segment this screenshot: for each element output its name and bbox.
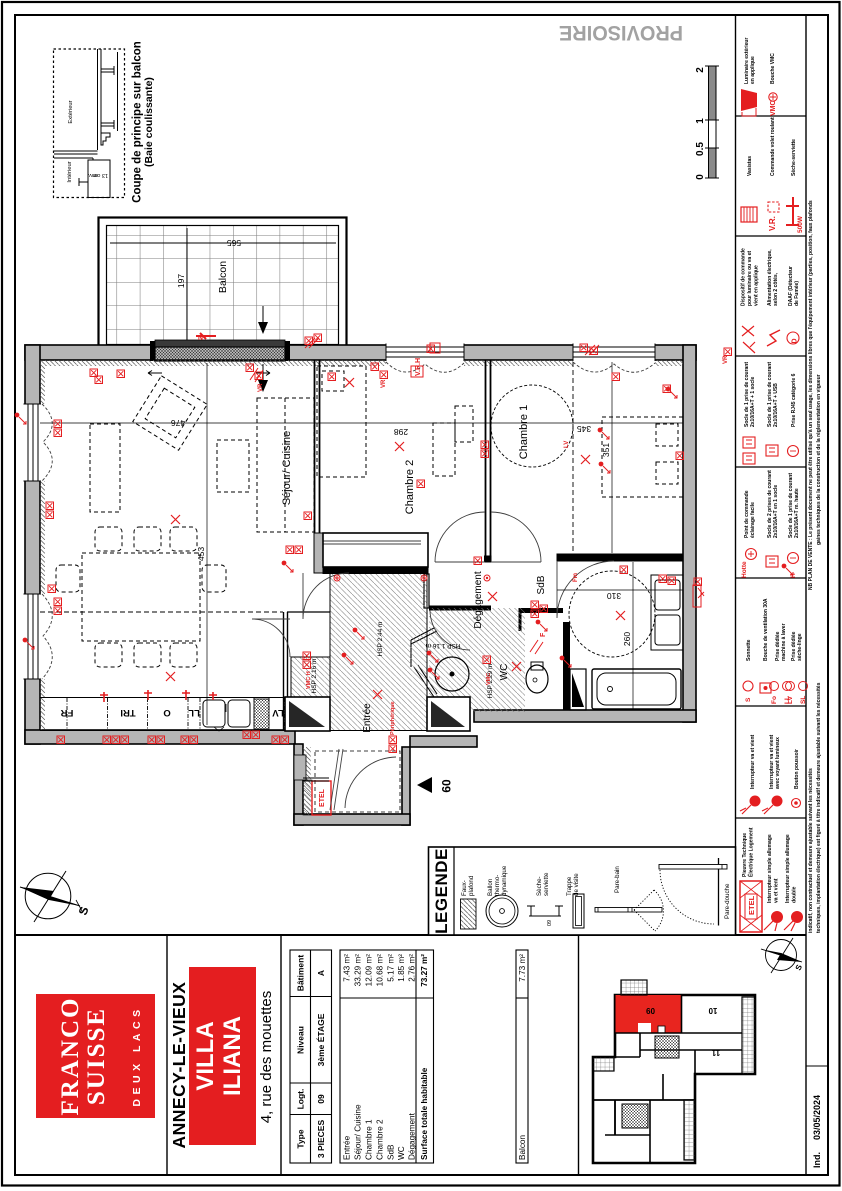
svg-text:12.09 m²: 12.09 m² (365, 954, 374, 987)
svg-text:Interrupteur va et vient: Interrupteur va et vient (750, 734, 756, 789)
svg-text:thermo-: thermo- (494, 875, 501, 896)
svg-text:453: 453 (196, 547, 206, 561)
svg-text:HSP 1.16 m: HSP 1.16 m (426, 642, 461, 649)
svg-text:WC: WC (397, 1146, 406, 1160)
svg-text:Séjour/ Cuisine: Séjour/ Cuisine (281, 431, 293, 506)
svg-text:(Baie coulissante): (Baie coulissante) (143, 77, 155, 167)
svg-text:gaines techniques de la constr: gaines techniques de la construction et … (816, 374, 822, 545)
svg-text:Interrupteur simple allumage: Interrupteur simple allumage (785, 834, 791, 903)
svg-text:500W: 500W (797, 215, 804, 233)
svg-text:4, rue des mouettes: 4, rue des mouettes (258, 991, 275, 1124)
svg-text:selon 2 côtés,: selon 2 côtés, (773, 272, 779, 306)
svg-text:dynamique: dynamique (501, 865, 508, 896)
svg-text:Balcon: Balcon (217, 261, 229, 293)
svg-text:NB PLAN DE VENTE : Le présent: NB PLAN DE VENTE : Le présent document n… (808, 200, 814, 590)
svg-text:Niveau: Niveau (296, 1026, 306, 1054)
svg-text:Socle de 2 prises de courant: Socle de 2 prises de courant (767, 470, 773, 538)
svg-text:V.R.: V.R. (768, 216, 777, 231)
svg-text:pour luminaire ou va et: pour luminaire ou va et (747, 251, 753, 306)
svg-text:LV: LV (272, 707, 284, 718)
svg-text:Balcon: Balcon (518, 1135, 527, 1160)
svg-text:Bouton poussoir: Bouton poussoir (794, 749, 800, 789)
svg-text:Trappe: Trappe (566, 876, 573, 896)
svg-text:S: S (76, 905, 92, 917)
svg-text:Périphérique: Périphérique (390, 701, 396, 735)
svg-text:73.27 m²: 73.27 m² (420, 954, 429, 987)
svg-text:0.5: 0.5 (695, 142, 706, 156)
svg-text:Pare-douche: Pare-douche (724, 883, 731, 919)
svg-text:N: N (198, 333, 203, 340)
svg-text:S: S (745, 697, 752, 702)
svg-text:Sèche-serviette: Sèche-serviette (791, 139, 797, 176)
svg-text:09: 09 (439, 779, 453, 793)
svg-text:indicatif, non contractuel et: indicatif, non contractuel et demeure aj… (808, 768, 814, 933)
svg-text:345: 345 (577, 424, 591, 434)
svg-text:WC: WC (499, 664, 510, 681)
svg-text:ANNECY-LE-VIEUX: ANNECY-LE-VIEUX (169, 982, 189, 1149)
svg-text:Hotte: Hotte (741, 561, 748, 578)
svg-text:Interrupteur simple allumage: Interrupteur simple allumage (767, 834, 773, 903)
svg-text:serviette: serviette (543, 872, 550, 896)
svg-text:260: 260 (622, 632, 632, 646)
svg-text:Ballon: Ballon (487, 878, 494, 896)
svg-text:Chambre 1: Chambre 1 (365, 1119, 374, 1160)
svg-text:2x10/16A+T + USB: 2x10/16A+T + USB (773, 383, 779, 427)
svg-text:TRI: TRI (120, 707, 135, 718)
svg-text:techniques, implantation élect: techniques, implantation électrique) est… (816, 682, 822, 933)
svg-text:476: 476 (171, 418, 185, 428)
svg-text:SdB: SdB (536, 575, 547, 594)
svg-text:Point de commande: Point de commande (744, 490, 750, 538)
svg-text:PROVISOIRE: PROVISOIRE (559, 21, 683, 45)
svg-text:FRANCO: FRANCO (57, 997, 84, 1116)
svg-text:VR: VR (258, 383, 264, 392)
svg-text:Luminaire extérieur: Luminaire extérieur (744, 38, 750, 84)
svg-text:O: O (163, 707, 170, 718)
svg-text:ETEL: ETEL (319, 788, 326, 807)
svg-text:1.85 m²: 1.85 m² (397, 954, 406, 982)
svg-text:Chambre 2: Chambre 2 (404, 460, 416, 514)
svg-text:DEUX LACS: DEUX LACS (131, 1005, 143, 1106)
svg-text:D: D (792, 338, 799, 343)
svg-text:1: 1 (695, 118, 706, 124)
svg-text:Bouche de ventilation 30A: Bouche de ventilation 30A (763, 598, 769, 661)
svg-text:0: 0 (695, 174, 706, 180)
svg-text:Électrique Logement: Électrique Logement (747, 827, 755, 877)
svg-text:SL: SL (800, 696, 807, 704)
svg-text:avec voyant lumineux: avec voyant lumineux (775, 737, 781, 789)
svg-text:F: F (540, 632, 547, 637)
svg-text:310: 310 (607, 591, 621, 601)
svg-text:Dégagement: Dégagement (408, 1112, 417, 1160)
svg-text:éclairage facile: éclairage facile (750, 502, 756, 538)
svg-text:Interrupteur va et vient: Interrupteur va et vient (769, 734, 775, 789)
svg-text:09: 09 (316, 1094, 326, 1104)
svg-text:Séjour/ Cuisine: Séjour/ Cuisine (354, 1104, 363, 1160)
svg-text:VILLA: VILLA (192, 1021, 219, 1090)
svg-text:33.29 m²: 33.29 m² (354, 954, 363, 987)
svg-text:S: S (794, 963, 805, 972)
svg-text:de visite: de visite (573, 873, 580, 896)
svg-text:3 PIECES: 3 PIECES (316, 1120, 326, 1159)
svg-text:SdB: SdB (387, 1144, 396, 1160)
svg-text:vient en applique: vient en applique (753, 265, 759, 306)
svg-text:HSP 2.16 m: HSP 2.16 m (311, 659, 318, 694)
svg-text:Sonnette: Sonnette (746, 639, 752, 661)
svg-text:Fm: Fm (573, 573, 579, 582)
svg-text:Prise RJ45 catégorie 6: Prise RJ45 catégorie 6 (791, 373, 797, 427)
svg-text:Bâtiment: Bâtiment (296, 955, 306, 992)
svg-text:3ème ÉTAGE: 3ème ÉTAGE (316, 1013, 326, 1066)
svg-text:13 cm: 13 cm (93, 172, 108, 178)
svg-text:VMC: VMC (770, 100, 777, 116)
svg-text:sèche-linge: sèche-linge (797, 633, 803, 661)
svg-text:plafond: plafond (468, 875, 475, 896)
svg-text:2x10/16A+T + 1 socle: 2x10/16A+T + 1 socle (750, 376, 756, 427)
svg-text:5.17 m²: 5.17 m² (387, 954, 396, 982)
svg-text:197: 197 (176, 274, 186, 288)
svg-text:11: 11 (711, 1048, 720, 1057)
svg-text:09: 09 (646, 1006, 655, 1015)
svg-text:7.43 m²: 7.43 m² (343, 954, 352, 982)
svg-text:Entrée: Entrée (343, 1135, 352, 1160)
svg-text:de Fumée): de Fumée) (794, 281, 800, 306)
svg-text:Fo: Fo (771, 696, 778, 704)
svg-text:10.68 m²: 10.68 m² (376, 954, 385, 987)
svg-text:2: 2 (695, 67, 706, 73)
svg-text:2x10/16A+T en 1 socle: 2x10/16A+T en 1 socle (773, 485, 779, 538)
svg-text:ETEL: ETEL (747, 895, 756, 915)
svg-text:565: 565 (227, 238, 241, 248)
svg-text:351: 351 (601, 443, 611, 457)
svg-text:Bouche VMC: Bouche VMC (770, 53, 776, 84)
svg-text:machine à laver: machine à laver (781, 623, 787, 661)
svg-text:Sèche-: Sèche- (536, 876, 543, 896)
svg-text:Prise dédiée: Prise dédiée (775, 631, 781, 661)
svg-text:2x10/16A+T m. haute: 2x10/16A+T m. haute (794, 488, 800, 538)
svg-text:Surface totale habitable: Surface totale habitable (420, 1067, 429, 1160)
svg-text:Vasistas: Vasistas (747, 156, 753, 176)
svg-text:VR: VR (723, 355, 729, 364)
svg-text:7.73 m²: 7.73 m² (518, 954, 527, 982)
svg-text:VMC H: VMC H (306, 671, 312, 689)
svg-text:HSP 2.44 m: HSP 2.44 m (377, 622, 384, 657)
svg-text:Dispositif de commande: Dispositif de commande (741, 248, 747, 306)
svg-text:VMC: VMC (486, 673, 492, 685)
svg-text:SUISSE: SUISSE (83, 1007, 110, 1105)
svg-text:DAAF (Détecteur: DAAF (Détecteur (788, 266, 794, 306)
svg-text:LV: LV (787, 696, 794, 704)
svg-text:A: A (316, 970, 326, 976)
svg-text:H: H (790, 573, 797, 578)
svg-text:FR: FR (61, 707, 74, 718)
svg-text:ILIANA: ILIANA (219, 1016, 246, 1096)
svg-text:Intérieur: Intérieur (67, 161, 73, 182)
svg-text:Socle de 1 prise de courant: Socle de 1 prise de courant (744, 362, 750, 427)
svg-text:Socle de 1 prise de courant: Socle de 1 prise de courant (767, 362, 773, 427)
svg-text:Coupe de principe sur balcon: Coupe de principe sur balcon (132, 41, 144, 203)
svg-text:Logt.: Logt. (296, 1089, 306, 1110)
svg-text:Socle de 1 prise de courant: Socle de 1 prise de courant (788, 473, 794, 538)
svg-text:2.76 m²: 2.76 m² (408, 954, 417, 982)
svg-text:Ind.: Ind. (812, 1152, 822, 1168)
svg-text:10: 10 (708, 1006, 717, 1015)
svg-text:V.R.H: V.R.H (415, 358, 422, 376)
svg-text:Chambre 2: Chambre 2 (376, 1119, 385, 1160)
svg-text:09: 09 (547, 920, 553, 926)
svg-text:Extérieur: Extérieur (68, 100, 74, 123)
svg-text:en applique: en applique (750, 56, 756, 84)
svg-text:Prise dédiée: Prise dédiée (791, 631, 797, 661)
svg-text:Type: Type (296, 1129, 306, 1148)
svg-text:Alimentation électrique,: Alimentation électrique, (767, 249, 773, 306)
svg-text:Commande volet roulant: Commande volet roulant (770, 117, 776, 176)
svg-text:Entrée: Entrée (362, 703, 373, 733)
svg-text:va et vient: va et vient (774, 878, 780, 903)
svg-text:LEGENDE: LEGENDE (432, 848, 451, 934)
svg-text:Pieuvre Technique: Pieuvre Technique (742, 833, 748, 877)
svg-text:Chambre 1: Chambre 1 (518, 405, 530, 459)
svg-text:Pare-bain: Pare-bain (614, 866, 621, 893)
svg-text:VR: VR (381, 379, 387, 388)
svg-text:double: double (792, 886, 798, 903)
svg-text:Dégagement: Dégagement (473, 571, 484, 628)
svg-text:Faux-: Faux- (461, 880, 468, 896)
svg-text:LL: LL (188, 707, 200, 718)
svg-text:LV: LV (564, 441, 570, 448)
svg-text:298: 298 (394, 427, 408, 437)
svg-text:03/05/2024: 03/05/2024 (812, 1095, 822, 1140)
